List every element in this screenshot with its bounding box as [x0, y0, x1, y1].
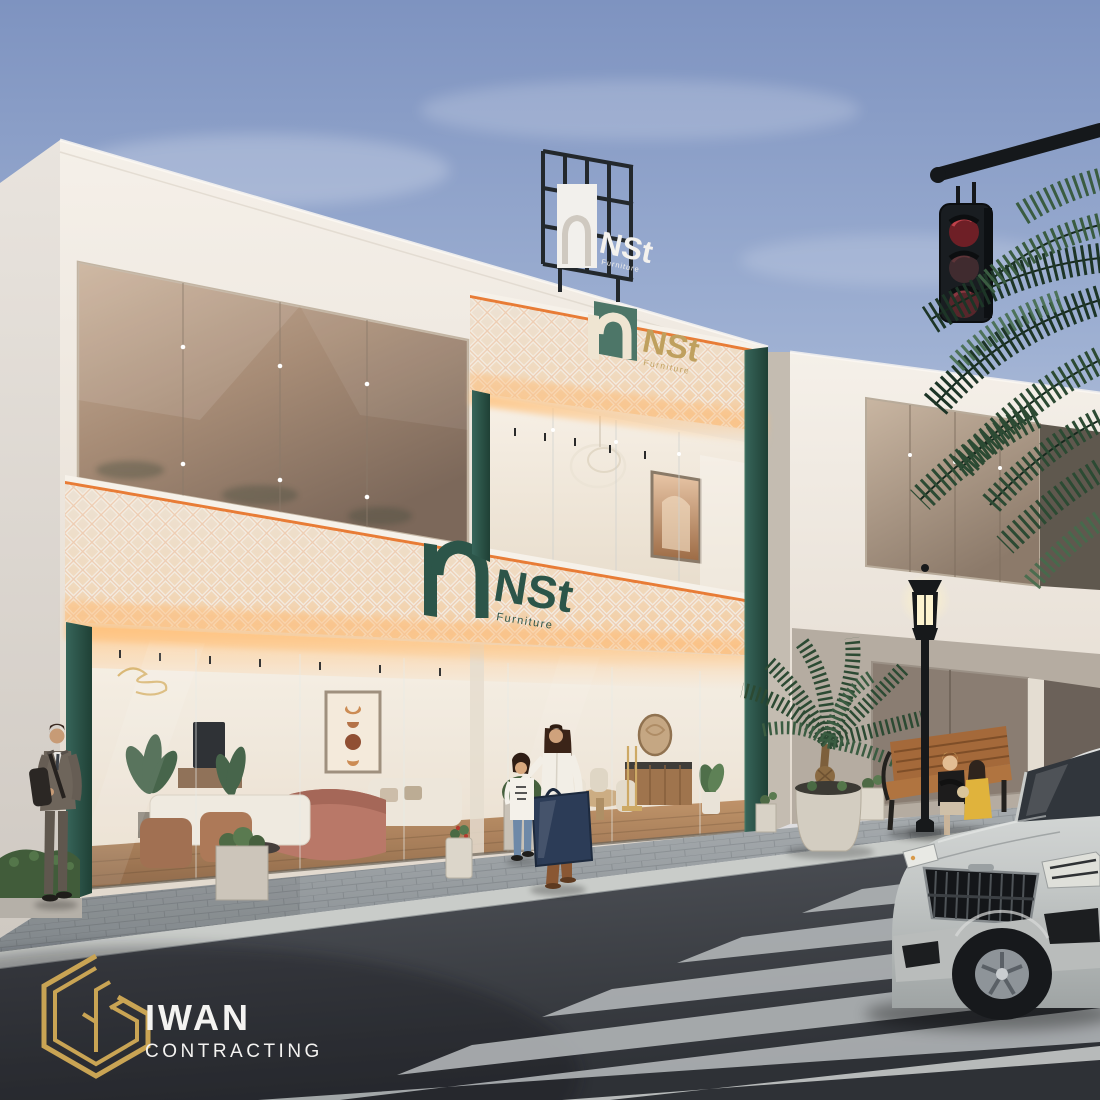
- upper-sign-logo: [588, 301, 637, 361]
- shopping-bag: [532, 789, 592, 866]
- car-badge: [968, 864, 994, 871]
- palm-pot: [796, 788, 861, 851]
- scene: NSt Furniture: [0, 0, 1100, 1100]
- bay-left-pillar: [472, 390, 490, 562]
- watermark-descriptor: CONTRACTING: [145, 1041, 323, 1062]
- bay-right-pillar: [745, 347, 768, 838]
- architectural-render: NSt Furniture: [0, 0, 1100, 1100]
- stone-planter: [216, 827, 268, 900]
- watermark-company: IWAN: [145, 997, 251, 1038]
